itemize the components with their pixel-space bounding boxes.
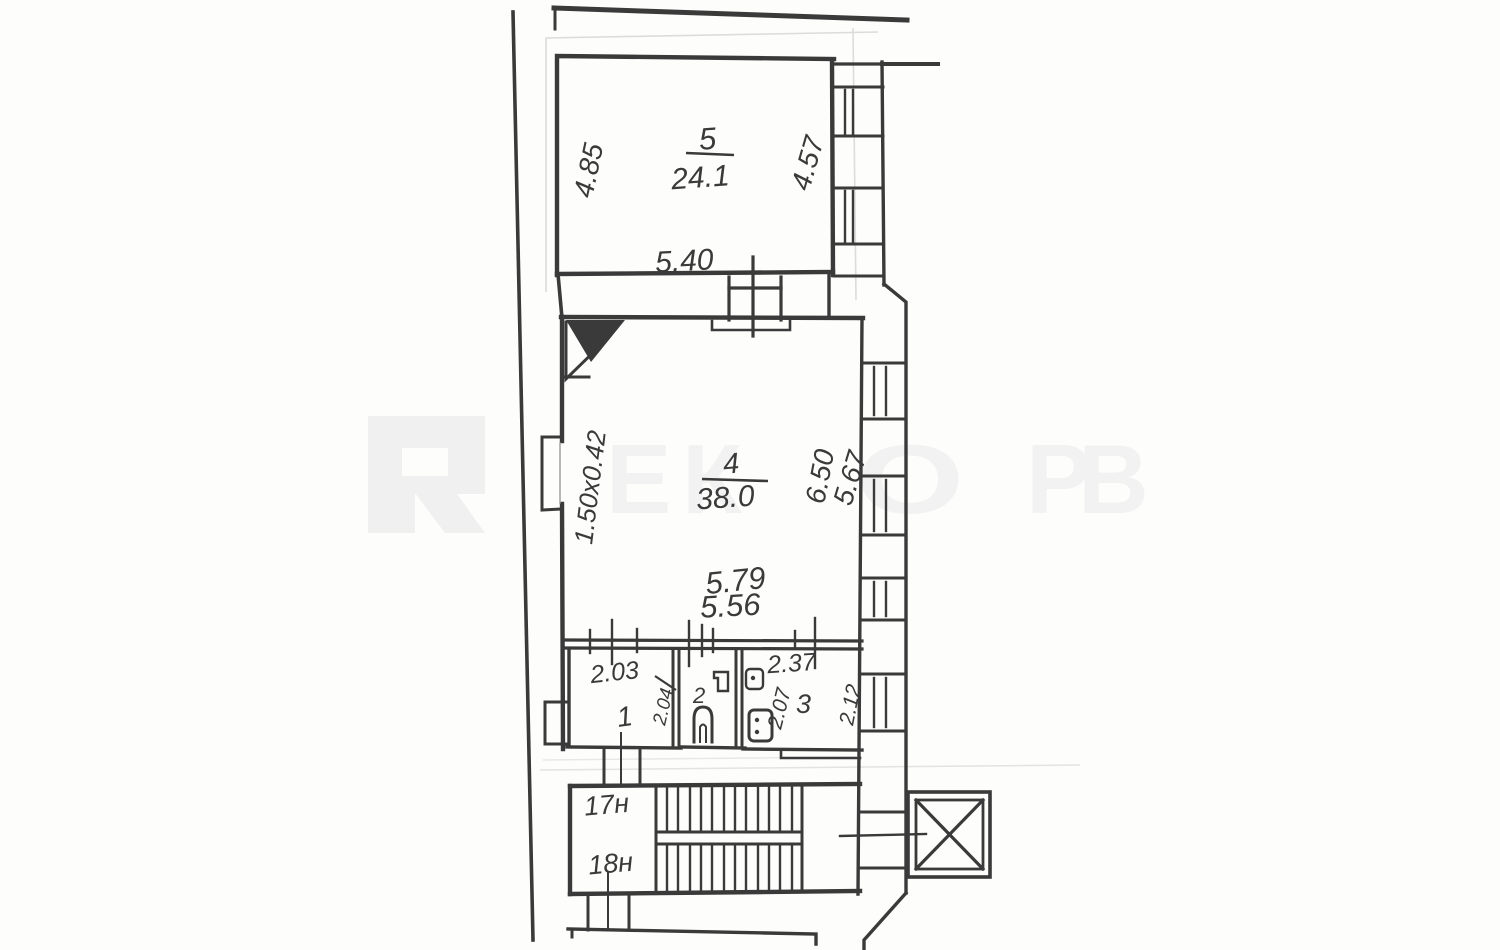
svg-text:2.37: 2.37 (765, 648, 818, 679)
svg-text:В: В (1078, 424, 1149, 534)
svg-text:Е: Е (606, 424, 671, 534)
svg-text:2.07: 2.07 (763, 685, 796, 732)
svg-text:1: 1 (615, 700, 635, 733)
svg-text:38.0: 38.0 (695, 479, 756, 516)
svg-text:4.57: 4.57 (785, 131, 830, 193)
svg-text:2.12: 2.12 (835, 682, 866, 728)
svg-text:О: О (856, 424, 964, 534)
svg-text:4: 4 (722, 448, 741, 481)
svg-text:24.1: 24.1 (669, 159, 731, 196)
svg-text:18н: 18н (587, 847, 634, 881)
svg-text:5.40: 5.40 (654, 243, 714, 279)
svg-text:3: 3 (796, 689, 811, 719)
svg-text:5.56: 5.56 (699, 587, 762, 625)
svg-text:5: 5 (698, 121, 718, 157)
svg-text:4.85: 4.85 (568, 140, 610, 200)
svg-text:2.03: 2.03 (588, 656, 640, 689)
svg-text:2: 2 (692, 683, 705, 708)
svg-text:17н: 17н (583, 788, 630, 822)
